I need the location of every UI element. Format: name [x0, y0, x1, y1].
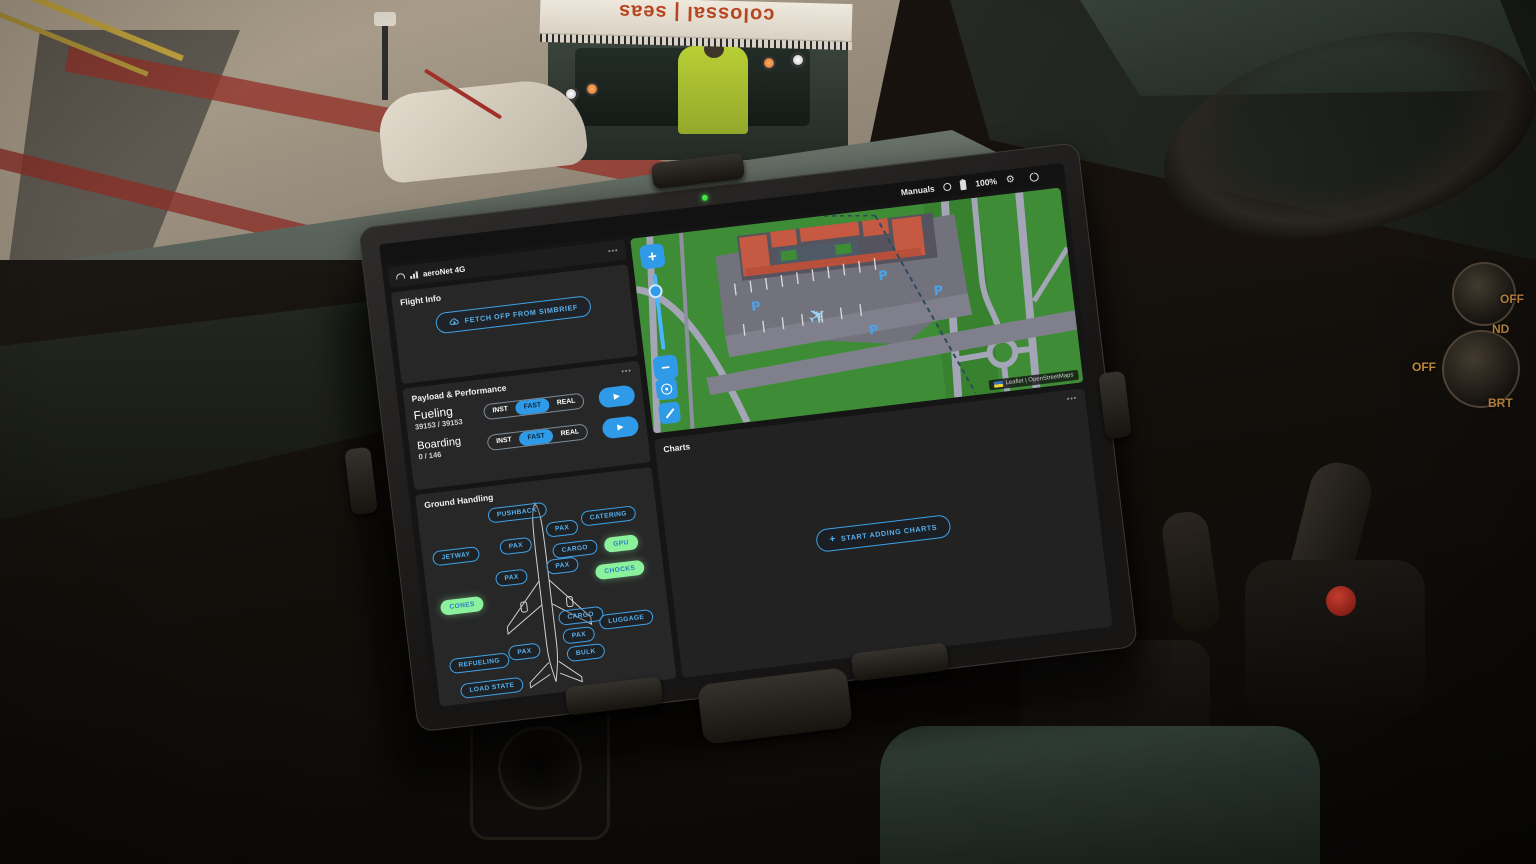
- tug-beacon: [762, 56, 776, 70]
- payload-menu-icon[interactable]: •••: [621, 368, 632, 379]
- tug-headlight: [790, 52, 806, 68]
- seat-cushion: [880, 726, 1320, 864]
- ground-handling-field: PUSHBACK JETWAY PAX PAX CARGO CATERING G…: [422, 489, 673, 702]
- red-emergency-button[interactable]: [1326, 586, 1356, 616]
- sync-icon[interactable]: [943, 182, 952, 191]
- boarding-mode-segmented: INST FAST REAL: [486, 423, 589, 451]
- tug-mirror-mast: [382, 20, 388, 100]
- start-adding-charts-label: START ADDING CHARTS: [840, 522, 937, 542]
- ground-crew-person: [678, 46, 748, 134]
- fueling-mode-real[interactable]: REAL: [548, 393, 584, 411]
- map-zoom-out-button[interactable]: −: [652, 354, 679, 381]
- fueling-start-button[interactable]: ▶: [598, 384, 636, 408]
- boarding-mode-inst[interactable]: INST: [487, 432, 520, 450]
- parking-p-label: P: [878, 268, 889, 284]
- battery-icon: [960, 180, 967, 191]
- boarding-mode-real[interactable]: REAL: [552, 424, 588, 442]
- ground-handling-panel: Ground Handling: [415, 467, 677, 707]
- screen-content: aeroNet 4G ••• Flight Info FETCH OFP: [388, 188, 1113, 707]
- wifi-icon: [396, 273, 406, 280]
- fetch-ofp-label: FETCH OFP FROM SIMBRIEF: [464, 303, 578, 325]
- map-orientation-button[interactable]: [658, 401, 681, 424]
- ukraine-flag-icon: [993, 381, 1003, 388]
- tug-mirror: [374, 12, 396, 26]
- battery-percent: 100%: [975, 176, 998, 189]
- network-label: aeroNet 4G: [422, 264, 465, 278]
- target-icon: [661, 383, 673, 395]
- tug-beacon: [585, 82, 599, 96]
- right-column: P P P P ✈ + −: [630, 188, 1112, 678]
- boarding-start-button[interactable]: ▶: [601, 415, 639, 439]
- knob-label-brt: BRT: [1488, 396, 1513, 410]
- tablet-screen: Manuals 100% ⚙ aeroNet 4G •••: [379, 163, 1119, 713]
- knob-label-nd: ND: [1492, 322, 1509, 336]
- tug-sign-text: colossal | seas: [540, 0, 853, 30]
- network-menu-icon[interactable]: •••: [608, 247, 619, 255]
- parking-p-label: P: [751, 299, 762, 315]
- camera-led: [702, 194, 709, 201]
- fueling-mode-fast[interactable]: FAST: [515, 397, 550, 415]
- efb-tablet: Manuals 100% ⚙ aeroNet 4G •••: [358, 142, 1138, 732]
- parking-p-label: P: [868, 323, 879, 339]
- charts-panel: Charts ••• + START ADDING CHARTS: [654, 388, 1112, 678]
- settings-gear-icon[interactable]: ⚙: [1005, 173, 1015, 185]
- fueling-mode-inst[interactable]: INST: [484, 401, 517, 419]
- boarding-mode-fast[interactable]: FAST: [519, 428, 554, 446]
- gh-gpu-button[interactable]: GPU: [603, 534, 638, 553]
- knob-label-off-lower: OFF: [1412, 360, 1436, 374]
- cloud-download-icon: [448, 317, 460, 327]
- power-icon[interactable]: [1029, 172, 1039, 182]
- signal-bars-icon: [410, 271, 419, 279]
- manuals-button[interactable]: Manuals: [900, 183, 935, 197]
- plus-icon: +: [829, 533, 837, 545]
- map-zoom-in-button[interactable]: +: [639, 243, 666, 270]
- start-adding-charts-button[interactable]: + START ADDING CHARTS: [815, 514, 951, 553]
- cockpit-scene: colossal | seas OFF ND OFF BRT Manuals 1…: [0, 0, 1536, 864]
- fueling-mode-segmented: INST FAST REAL: [483, 392, 586, 420]
- parking-p-label: P: [933, 283, 944, 299]
- left-column: aeroNet 4G ••• Flight Info FETCH OFP: [388, 240, 677, 707]
- compass-needle-icon: [665, 408, 674, 419]
- map-follow-aircraft-button[interactable]: [655, 377, 678, 400]
- joystick-base: [1245, 560, 1425, 720]
- knob-label-off-upper: OFF: [1500, 292, 1524, 306]
